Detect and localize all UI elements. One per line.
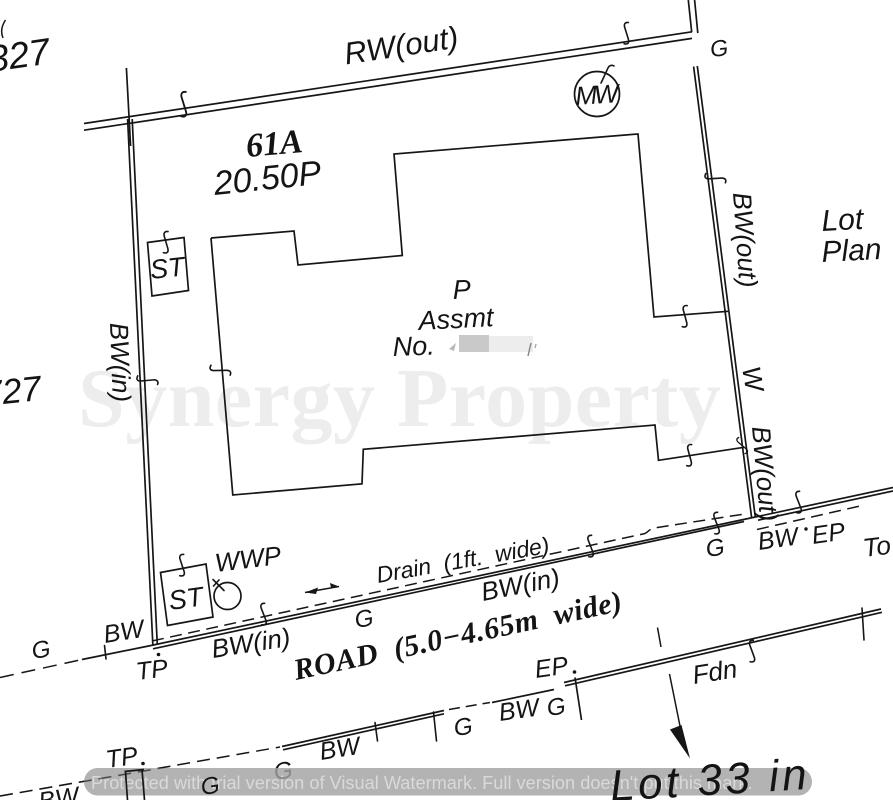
svg-text:Plan: Plan [821,233,883,269]
svg-text:ST: ST [148,251,188,285]
svg-text:727: 727 [0,369,44,414]
svg-text:EP: EP [810,518,847,550]
svg-text:BW(in): BW(in) [104,322,137,402]
svg-text:G: G [709,34,730,62]
svg-text:TP: TP [134,654,169,686]
svg-text:ST: ST [167,581,208,616]
svg-text:G: G [704,534,726,563]
svg-text:P: P [452,274,471,305]
svg-text:G: G [199,772,221,800]
svg-text:No.: No. [392,331,435,362]
svg-text:Lot: Lot [821,203,866,238]
svg-text:BW: BW [756,522,802,556]
svg-text:G: G [545,693,567,722]
svg-text:To: To [861,530,892,563]
svg-text:EP: EP [533,652,570,684]
svg-text:G: G [452,713,474,742]
svg-text:Synergy Property: Synergy Property [78,352,721,445]
svg-text:BW: BW [497,693,543,727]
